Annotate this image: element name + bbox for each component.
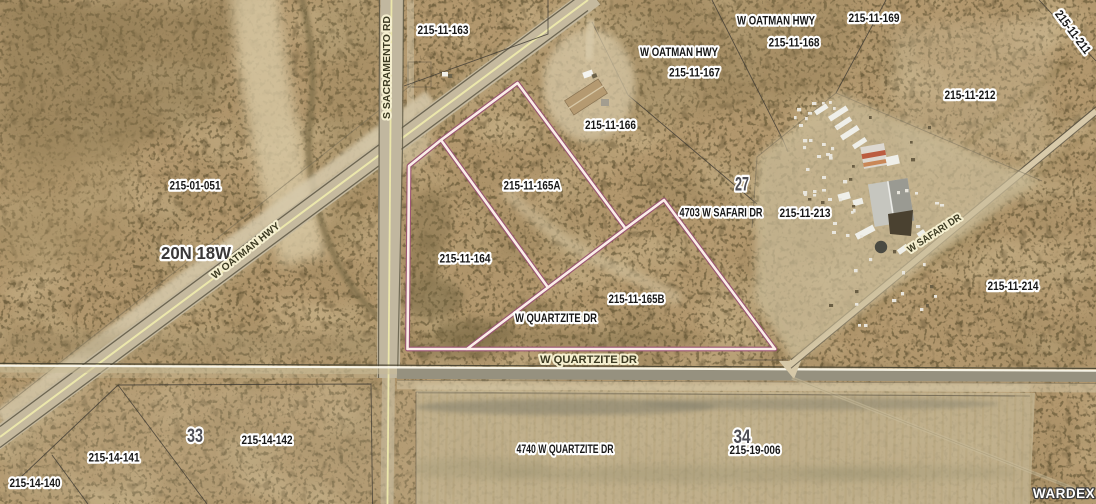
svg-text:33: 33	[187, 426, 203, 447]
svg-text:215-11-163: 215-11-163	[418, 23, 469, 37]
svg-text:W OATMAN HWY: W OATMAN HWY	[737, 14, 815, 28]
svg-text:215-11-165A: 215-11-165A	[504, 179, 561, 193]
svg-text:215-11-166: 215-11-166	[585, 118, 636, 132]
svg-text:215-11-165B: 215-11-165B	[609, 292, 665, 306]
svg-text:215-11-167: 215-11-167	[669, 66, 720, 80]
svg-text:W OATMAN HWY: W OATMAN HWY	[640, 45, 718, 59]
svg-text:215-14-141: 215-14-141	[89, 451, 140, 465]
svg-text:WARDEX: WARDEX	[1033, 486, 1095, 501]
svg-text:S SACRAMENTO RD: S SACRAMENTO RD	[382, 16, 393, 119]
svg-text:4703 W SAFARI DR: 4703 W SAFARI DR	[680, 206, 763, 220]
svg-text:215-14-140: 215-14-140	[10, 476, 61, 490]
svg-text:215-11-212: 215-11-212	[945, 88, 996, 102]
svg-text:215-11-214: 215-11-214	[988, 279, 1039, 293]
svg-text:34: 34	[734, 427, 751, 448]
svg-text:215-01-051: 215-01-051	[170, 179, 221, 193]
svg-text:215-14-142: 215-14-142	[242, 433, 293, 447]
svg-text:20N 18W: 20N 18W	[161, 243, 231, 263]
svg-text:215-11-169: 215-11-169	[849, 11, 900, 25]
svg-text:215-11-164: 215-11-164	[440, 252, 491, 266]
svg-text:W QUARTZITE DR: W QUARTZITE DR	[515, 311, 597, 325]
svg-text:4740 W QUARTZITE DR: 4740 W QUARTZITE DR	[517, 442, 614, 456]
svg-text:215-11-213: 215-11-213	[780, 206, 831, 220]
svg-text:W QUARTZITE DR: W QUARTZITE DR	[540, 354, 637, 366]
svg-text:215-11-168: 215-11-168	[769, 36, 820, 50]
svg-text:27: 27	[735, 175, 749, 196]
